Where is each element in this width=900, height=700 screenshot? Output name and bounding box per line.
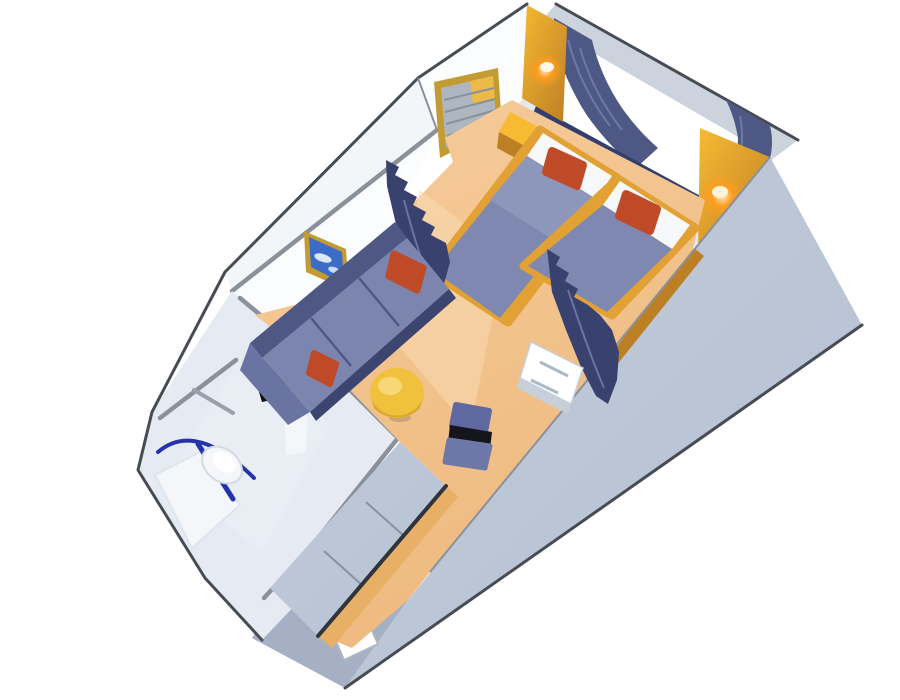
stateroom-floor-plan (0, 0, 900, 700)
desk-chair (445, 405, 492, 468)
chair-seat (445, 440, 490, 468)
table-highlight (378, 377, 402, 395)
floor-plan-rendering (0, 0, 900, 700)
wall-lamp-right-core (712, 186, 728, 198)
wall-lamp-left-core (540, 62, 554, 72)
